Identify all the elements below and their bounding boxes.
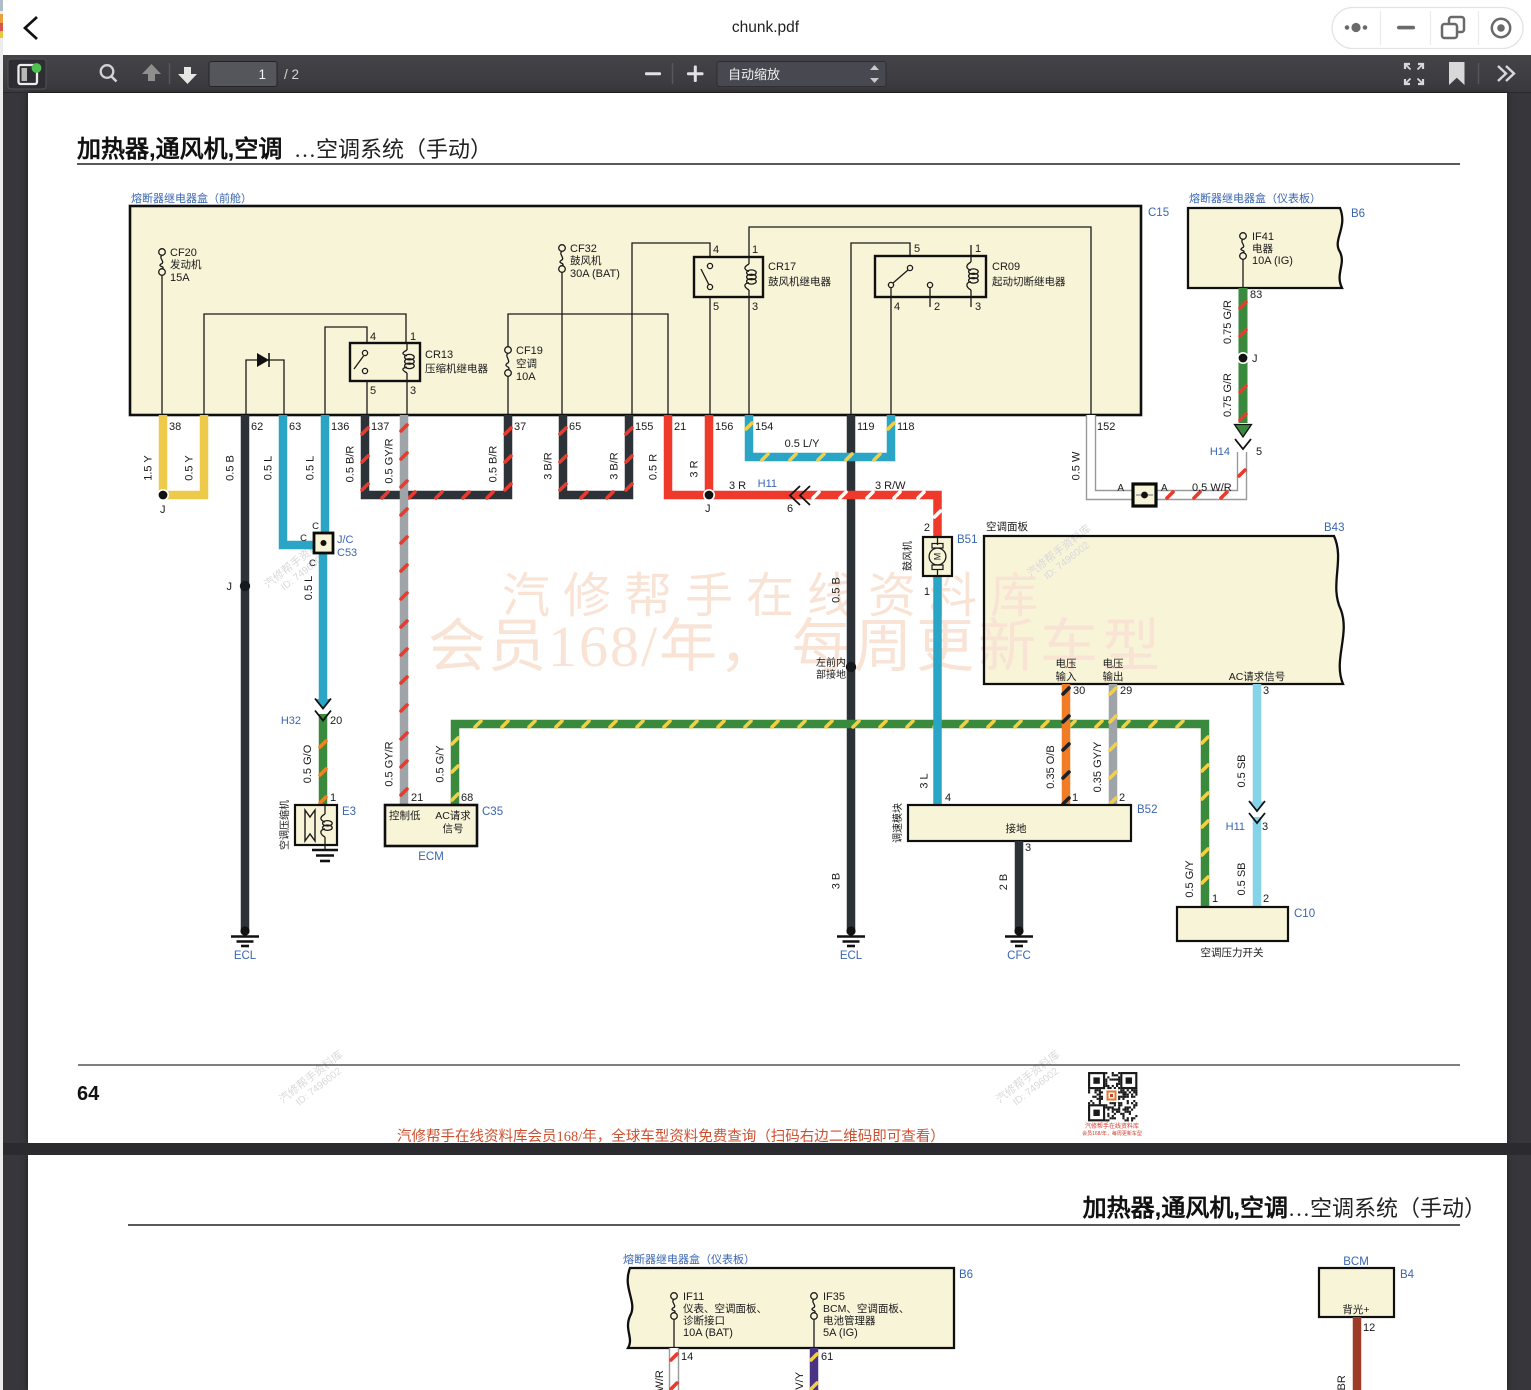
svg-text:4: 4 bbox=[713, 244, 719, 256]
svg-text:118: 118 bbox=[897, 421, 915, 433]
svg-text:0.5 W: 0.5 W bbox=[1071, 451, 1083, 480]
svg-text:5A (IG): 5A (IG) bbox=[823, 1327, 858, 1339]
svg-text:5: 5 bbox=[713, 301, 719, 313]
svg-text:3: 3 bbox=[1263, 685, 1269, 697]
svg-text:空调面板: 空调面板 bbox=[986, 520, 1028, 533]
svg-text:C53: C53 bbox=[337, 547, 357, 559]
svg-text:65: 65 bbox=[569, 421, 581, 433]
svg-text:0.35 O/B: 0.35 O/B bbox=[1045, 745, 1057, 788]
svg-text:H14: H14 bbox=[1210, 446, 1230, 458]
svg-text:0.5 W/R: 0.5 W/R bbox=[1192, 482, 1232, 494]
svg-text:J: J bbox=[227, 581, 233, 593]
svg-text:C: C bbox=[312, 521, 319, 532]
svg-text:B51: B51 bbox=[957, 534, 977, 546]
svg-text:0.5 G/Y: 0.5 G/Y bbox=[435, 745, 447, 783]
svg-text:3 R/W: 3 R/W bbox=[875, 480, 906, 492]
svg-text:29: 29 bbox=[1120, 685, 1132, 697]
svg-text:0.5 L: 0.5 L bbox=[263, 456, 275, 480]
svg-text:0.5 B/R: 0.5 B/R bbox=[488, 446, 500, 483]
svg-text:IF11: IF11 bbox=[683, 1291, 704, 1303]
svg-text:CR09: CR09 bbox=[992, 261, 1020, 273]
svg-text:6: 6 bbox=[787, 503, 793, 515]
svg-text:…空调系统（手动）: …空调系统（手动） bbox=[1288, 1196, 1486, 1221]
svg-text:0.5 GY/R: 0.5 GY/R bbox=[384, 741, 396, 786]
svg-text:E3: E3 bbox=[342, 806, 356, 818]
svg-text:3 B/R: 3 B/R bbox=[609, 452, 621, 480]
svg-text:0.5 SB: 0.5 SB bbox=[1236, 754, 1248, 787]
svg-text:0.75 G/R: 0.75 G/R bbox=[1222, 300, 1234, 344]
svg-text:J: J bbox=[160, 504, 166, 516]
svg-text:10A: 10A bbox=[516, 371, 536, 383]
svg-text:3: 3 bbox=[1025, 842, 1031, 854]
svg-text:0.5 SB: 0.5 SB bbox=[1236, 862, 1248, 895]
svg-text:3 R: 3 R bbox=[729, 480, 746, 492]
svg-text:空调: 空调 bbox=[516, 357, 537, 370]
svg-text:A: A bbox=[1161, 483, 1168, 494]
svg-text:3 R: 3 R bbox=[689, 460, 701, 477]
svg-text:119: 119 bbox=[857, 421, 875, 433]
svg-text:21: 21 bbox=[411, 792, 423, 804]
svg-text:136: 136 bbox=[331, 421, 349, 433]
svg-text:CF20: CF20 bbox=[170, 247, 197, 259]
svg-text:B6: B6 bbox=[1351, 208, 1365, 220]
svg-text:压缩机继电器: 压缩机继电器 bbox=[425, 362, 488, 375]
svg-text:IF35: IF35 bbox=[823, 1291, 845, 1303]
svg-text:空调压缩机: 空调压缩机 bbox=[278, 800, 291, 850]
svg-text:0.5 GY/R: 0.5 GY/R bbox=[384, 438, 396, 483]
svg-text:12: 12 bbox=[1363, 1322, 1375, 1334]
svg-text:接地: 接地 bbox=[1006, 822, 1028, 835]
svg-text:20: 20 bbox=[330, 715, 342, 727]
svg-text:ECM: ECM bbox=[418, 851, 444, 863]
svg-text:C15: C15 bbox=[1148, 207, 1169, 219]
svg-text:鼓风机继电器: 鼓风机继电器 bbox=[768, 275, 831, 288]
svg-text:83: 83 bbox=[1250, 289, 1262, 301]
svg-text:1: 1 bbox=[330, 792, 336, 804]
svg-text:B52: B52 bbox=[1137, 804, 1157, 816]
svg-text:会员168/年，: 会员168/年， bbox=[428, 614, 779, 679]
svg-text:CR17: CR17 bbox=[768, 261, 796, 273]
svg-text:C: C bbox=[309, 558, 316, 569]
svg-text:1: 1 bbox=[752, 244, 758, 256]
svg-text:1: 1 bbox=[975, 243, 981, 255]
svg-text:0.5 V/Y: 0.5 V/Y bbox=[794, 1371, 806, 1390]
svg-text:0.5 W/R: 0.5 W/R bbox=[654, 1370, 666, 1390]
svg-text:J: J bbox=[705, 503, 711, 515]
svg-text:背光+: 背光+ bbox=[1342, 1303, 1369, 1316]
svg-text:61: 61 bbox=[821, 1351, 833, 1363]
svg-text:30: 30 bbox=[1073, 685, 1085, 697]
svg-text:137: 137 bbox=[371, 421, 389, 433]
svg-text:21: 21 bbox=[674, 421, 686, 433]
svg-text:2 B: 2 B bbox=[998, 874, 1010, 891]
svg-text:10A (BAT): 10A (BAT) bbox=[683, 1327, 733, 1339]
svg-text:5: 5 bbox=[370, 385, 376, 397]
svg-text:0.5 L: 0.5 L bbox=[303, 576, 315, 600]
svg-text:3: 3 bbox=[975, 301, 981, 313]
svg-text:J/C: J/C bbox=[337, 534, 354, 546]
svg-text:0.35 GY/Y: 0.35 GY/Y bbox=[1092, 741, 1104, 792]
svg-text:2: 2 bbox=[934, 301, 940, 313]
svg-text:汽修帮手在线资料库: 汽修帮手在线资料库 bbox=[1085, 1122, 1139, 1130]
svg-text:熔断器继电器盒（前舱）: 熔断器继电器盒（前舱） bbox=[131, 191, 252, 205]
svg-text:/ 2: / 2 bbox=[284, 67, 299, 82]
svg-text:IF41: IF41 bbox=[1252, 231, 1274, 243]
svg-text:63: 63 bbox=[289, 421, 301, 433]
svg-text:H11: H11 bbox=[758, 478, 777, 490]
svg-text:左前内: 左前内 bbox=[816, 656, 846, 669]
svg-text:0.5 BR: 0.5 BR bbox=[1336, 1375, 1348, 1390]
svg-text:0.5 Y: 0.5 Y bbox=[184, 455, 196, 481]
svg-text:熔断器继电器盒（仪表板）: 熔断器继电器盒（仪表板） bbox=[1189, 191, 1321, 205]
svg-text:BCM、空调面板、: BCM、空调面板、 bbox=[823, 1302, 909, 1315]
svg-text:会员168/年，每周更新车型: 会员168/年，每周更新车型 bbox=[1082, 1130, 1142, 1137]
svg-text:0.5 G/Y: 0.5 G/Y bbox=[1184, 860, 1196, 898]
svg-text:1: 1 bbox=[258, 67, 266, 82]
svg-text:M: M bbox=[933, 553, 943, 561]
svg-text:诊断接口: 诊断接口 bbox=[683, 1314, 725, 1327]
svg-text:38: 38 bbox=[169, 421, 181, 433]
svg-text:CR13: CR13 bbox=[425, 349, 453, 361]
svg-text:2: 2 bbox=[924, 522, 930, 534]
svg-text:H11: H11 bbox=[1226, 821, 1245, 833]
svg-text:3: 3 bbox=[410, 385, 416, 397]
svg-text:ECL: ECL bbox=[234, 950, 257, 962]
svg-text:1: 1 bbox=[924, 586, 930, 598]
svg-text:BCM: BCM bbox=[1343, 1256, 1369, 1268]
svg-text:0.5 L/Y: 0.5 L/Y bbox=[785, 438, 821, 450]
svg-text:4: 4 bbox=[370, 331, 376, 343]
svg-text:3: 3 bbox=[752, 301, 758, 313]
svg-text:鼓风机: 鼓风机 bbox=[901, 541, 914, 571]
svg-text:30A (BAT): 30A (BAT) bbox=[570, 268, 620, 280]
svg-text:15A: 15A bbox=[170, 272, 190, 284]
svg-text:CF32: CF32 bbox=[570, 243, 597, 255]
svg-text:熔断器继电器盒（仪表板）: 熔断器继电器盒（仪表板） bbox=[623, 1252, 755, 1266]
svg-text:0.75 G/R: 0.75 G/R bbox=[1222, 373, 1234, 417]
svg-text:C10: C10 bbox=[1294, 908, 1315, 920]
svg-text:B4: B4 bbox=[1400, 1269, 1415, 1281]
svg-text:输入: 输入 bbox=[1056, 670, 1078, 683]
svg-text:空调压力开关: 空调压力开关 bbox=[1201, 946, 1264, 959]
svg-text:14: 14 bbox=[681, 1351, 693, 1363]
svg-text:B6: B6 bbox=[959, 1269, 973, 1281]
svg-text:输出: 输出 bbox=[1103, 670, 1124, 683]
svg-text:CFC: CFC bbox=[1007, 950, 1031, 962]
svg-text:C35: C35 bbox=[482, 806, 503, 818]
svg-text:…空调系统（手动）: …空调系统（手动） bbox=[294, 137, 492, 162]
svg-text:37: 37 bbox=[514, 421, 526, 433]
svg-text:A: A bbox=[1117, 483, 1124, 494]
svg-text:64: 64 bbox=[77, 1083, 100, 1105]
svg-text:B43: B43 bbox=[1324, 522, 1344, 534]
svg-text:5: 5 bbox=[1256, 446, 1262, 458]
svg-text:154: 154 bbox=[755, 421, 773, 433]
svg-text:汽修帮手在线资料库会员168/年，全球车型资料免费查询（扫码: 汽修帮手在线资料库会员168/年，全球车型资料免费查询（扫码右边二维码即可查看） bbox=[397, 1127, 945, 1143]
svg-text:3 B: 3 B bbox=[831, 873, 843, 890]
svg-text:3: 3 bbox=[1262, 821, 1268, 833]
svg-text:控制低: 控制低 bbox=[389, 809, 421, 822]
svg-text:ECL: ECL bbox=[840, 950, 863, 962]
svg-text:68: 68 bbox=[461, 792, 473, 804]
svg-text:1: 1 bbox=[1072, 792, 1078, 804]
svg-text:4: 4 bbox=[945, 792, 951, 804]
svg-text:电压: 电压 bbox=[1056, 657, 1078, 670]
svg-text:起动切断继电器: 起动切断继电器 bbox=[992, 275, 1066, 288]
svg-text:0.5 B: 0.5 B bbox=[225, 455, 237, 481]
svg-text:C: C bbox=[300, 533, 307, 544]
svg-text:1: 1 bbox=[410, 331, 416, 343]
svg-text:AC请求信号: AC请求信号 bbox=[1229, 670, 1286, 683]
svg-text:2: 2 bbox=[1263, 893, 1269, 905]
svg-text:加热器,通风机,空调: 加热器,通风机,空调 bbox=[1083, 1194, 1288, 1222]
svg-text:5: 5 bbox=[914, 243, 920, 255]
svg-text:AC请求: AC请求 bbox=[435, 809, 471, 822]
svg-text:加热器,通风机,空调: 加热器,通风机,空调 bbox=[77, 135, 282, 163]
svg-text:10A (IG): 10A (IG) bbox=[1252, 255, 1293, 267]
svg-text:鼓风机: 鼓风机 bbox=[570, 254, 602, 267]
svg-text:H32: H32 bbox=[281, 715, 301, 727]
svg-text:信号: 信号 bbox=[443, 823, 464, 835]
svg-text:0.5 B/R: 0.5 B/R bbox=[345, 446, 357, 483]
svg-text:62: 62 bbox=[251, 421, 263, 433]
svg-text:部接地: 部接地 bbox=[816, 668, 846, 681]
svg-text:发动机: 发动机 bbox=[170, 258, 202, 271]
svg-text:0.5 G/O: 0.5 G/O bbox=[302, 744, 314, 783]
svg-text:0.5 L: 0.5 L bbox=[305, 456, 317, 480]
svg-text:调速模块: 调速模块 bbox=[892, 803, 904, 843]
svg-text:155: 155 bbox=[635, 421, 653, 433]
svg-text:仪表、空调面板、: 仪表、空调面板、 bbox=[683, 1302, 767, 1315]
svg-text:2: 2 bbox=[1119, 792, 1125, 804]
svg-text:自动缩放: 自动缩放 bbox=[728, 67, 780, 82]
svg-text:电压: 电压 bbox=[1103, 657, 1125, 670]
svg-text:156: 156 bbox=[715, 421, 733, 433]
svg-text:0.5 R: 0.5 R bbox=[648, 454, 660, 480]
svg-text:3 B/R: 3 B/R bbox=[543, 452, 555, 480]
svg-text:J: J bbox=[1252, 353, 1258, 365]
svg-text:CF19: CF19 bbox=[516, 345, 543, 357]
svg-text:1: 1 bbox=[1212, 893, 1218, 905]
svg-text:电器: 电器 bbox=[1252, 242, 1274, 255]
svg-text:4: 4 bbox=[894, 301, 900, 313]
svg-text:电池管理器: 电池管理器 bbox=[823, 1314, 876, 1327]
svg-text:0.5 B: 0.5 B bbox=[831, 577, 843, 603]
svg-text:1.5 Y: 1.5 Y bbox=[143, 455, 155, 481]
svg-text:3 L: 3 L bbox=[919, 773, 931, 788]
svg-text:152: 152 bbox=[1097, 421, 1115, 433]
